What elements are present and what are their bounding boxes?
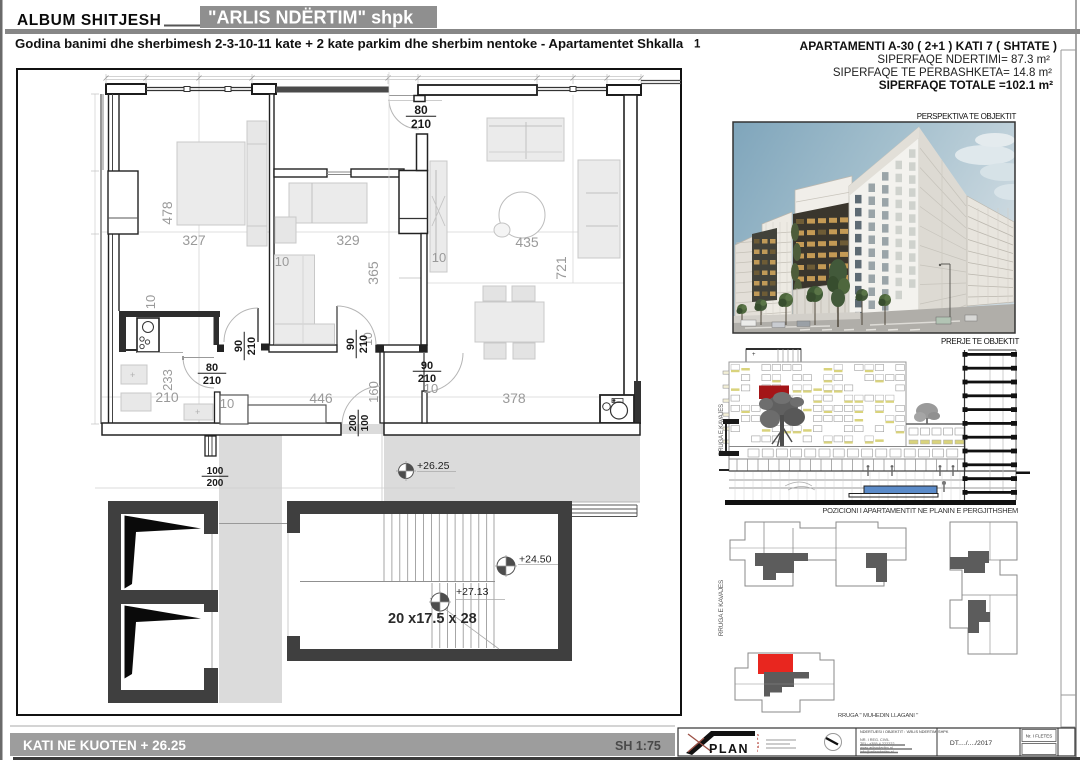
svg-text:446: 446 <box>309 390 333 406</box>
svg-text:233: 233 <box>160 369 175 391</box>
svg-text:329: 329 <box>336 232 360 248</box>
svg-text:SH 1:75: SH 1:75 <box>615 739 661 753</box>
svg-text:PLAN: PLAN <box>709 742 749 756</box>
svg-text:210: 210 <box>155 389 179 405</box>
svg-text:10: 10 <box>143 295 158 309</box>
svg-text:RRUGA " MUHEDIN LLAGANI ": RRUGA " MUHEDIN LLAGANI " <box>838 713 918 719</box>
svg-text:DT..../..../2017: DT..../..../2017 <box>950 740 993 747</box>
svg-text:210: 210 <box>358 335 370 353</box>
svg-text:435: 435 <box>515 234 539 250</box>
svg-text:210: 210 <box>246 337 258 355</box>
svg-text:+27.13: +27.13 <box>456 586 489 598</box>
svg-text:200: 200 <box>207 478 224 489</box>
svg-text:721: 721 <box>553 256 569 280</box>
svg-text:210: 210 <box>418 373 436 385</box>
svg-text:POZICIONI I APARTAMENTIT NE PL: POZICIONI I APARTAMENTIT NE PLANIN E PER… <box>822 506 1018 515</box>
svg-text:90: 90 <box>345 338 357 350</box>
svg-text:378: 378 <box>502 390 526 406</box>
svg-text:Nr. I FLETES: Nr. I FLETES <box>1026 734 1053 739</box>
svg-text:80: 80 <box>414 103 428 117</box>
svg-text:SIPERFAQE TOTALE =102.1 m²: SIPERFAQE TOTALE =102.1 m² <box>879 78 1053 92</box>
svg-text:1: 1 <box>694 39 701 51</box>
svg-text:100: 100 <box>207 466 224 477</box>
svg-text:327: 327 <box>182 232 206 248</box>
svg-text:RRUGA E KAVAJES: RRUGA E KAVAJES <box>718 579 725 636</box>
svg-text:90: 90 <box>421 360 433 372</box>
svg-text:10: 10 <box>275 254 289 269</box>
svg-text:365: 365 <box>365 261 381 285</box>
svg-text:+: + <box>195 407 200 417</box>
svg-text:90: 90 <box>233 340 245 352</box>
svg-text:"ARLIS NDËRTIM" shpk: "ARLIS NDËRTIM" shpk <box>208 8 414 28</box>
svg-text:PRERJE TE OBJEKTIT: PRERJE TE OBJEKTIT <box>941 337 1019 346</box>
svg-text:NDERTUESI I OBJEKTIT : 'ARLIS: NDERTUESI I OBJEKTIT : 'ARLIS NDERTIM' S… <box>860 730 949 734</box>
svg-text:100: 100 <box>360 414 371 431</box>
svg-text:+26.25: +26.25 <box>417 460 450 472</box>
svg-text:+: + <box>130 370 135 380</box>
svg-text:ALBUM SHITJESH: ALBUM SHITJESH <box>17 12 161 29</box>
svg-text:20 x17.5 x 28: 20 x17.5 x 28 <box>388 611 477 627</box>
svg-text:PERSPEKTIVA TE OBJEKTIT: PERSPEKTIVA TE OBJEKTIT <box>917 112 1017 121</box>
svg-text:10: 10 <box>220 396 234 411</box>
svg-text:+: + <box>752 352 756 358</box>
svg-text:210: 210 <box>411 117 431 131</box>
svg-text:200: 200 <box>348 414 359 431</box>
svg-text:APARTAMENTI A-30 ( 2+1 ) KAT: APARTAMENTI A-30 ( 2+1 ) KATI 7 ( SHTATE… <box>800 39 1057 53</box>
svg-text:80: 80 <box>206 362 218 374</box>
svg-text:SIPERFAQE NDERTIMI= 87.3 m²: SIPERFAQE NDERTIMI= 87.3 m² <box>877 54 1050 66</box>
svg-text:KATI NE KUOTEN + 26.25: KATI NE KUOTEN + 26.25 <box>23 738 186 753</box>
svg-text:i: i <box>757 749 758 753</box>
svg-text:210: 210 <box>203 375 221 387</box>
svg-text:10: 10 <box>432 250 446 265</box>
svg-text:Godina banimi dhe sherbimesh: Godina banimi dhe sherbimesh 2-3-10-11 k… <box>15 36 684 51</box>
svg-text:478: 478 <box>159 201 175 225</box>
svg-text:160: 160 <box>366 381 381 403</box>
svg-text:+24.50: +24.50 <box>519 554 552 566</box>
